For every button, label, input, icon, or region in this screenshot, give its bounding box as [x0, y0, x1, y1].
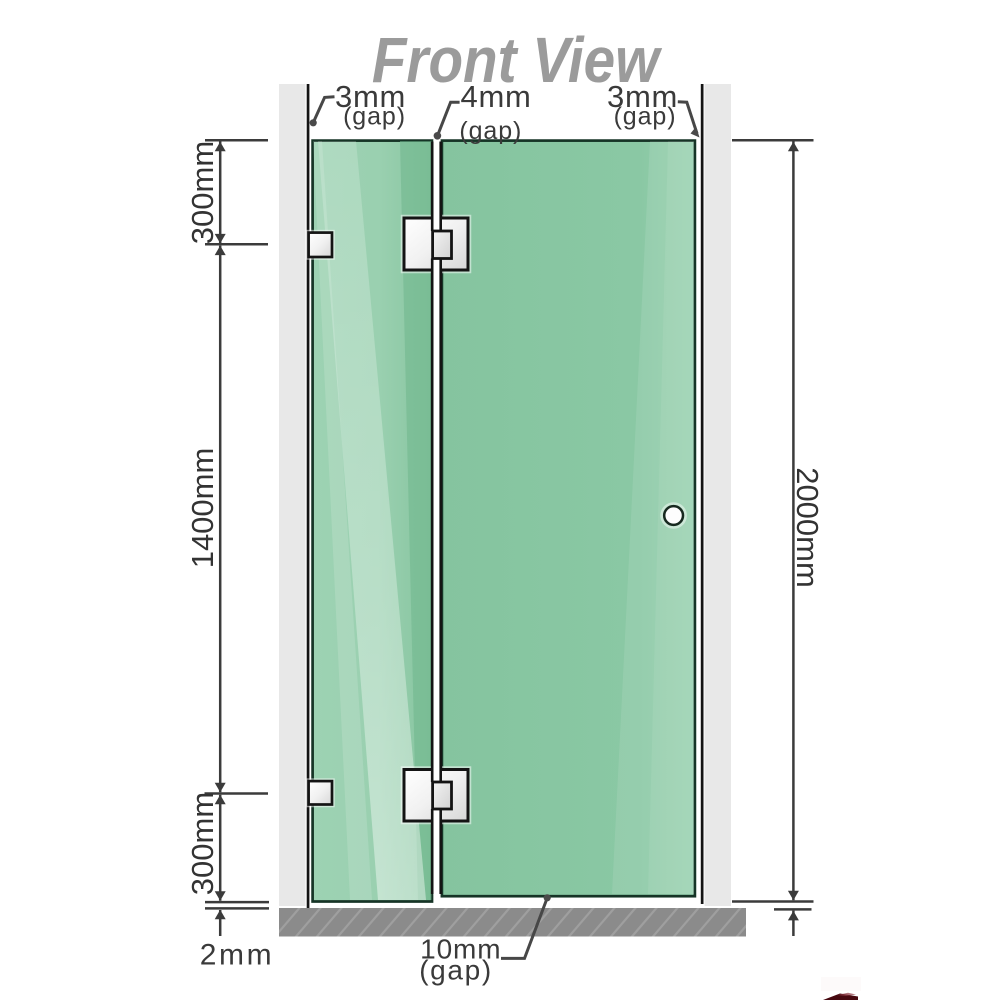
svg-text:4mm: 4mm: [461, 79, 532, 114]
svg-text:2000mm: 2000mm: [790, 467, 825, 588]
svg-text:(gap): (gap): [614, 103, 677, 131]
svg-text:1400mm: 1400mm: [185, 448, 220, 569]
svg-text:(gap): (gap): [459, 117, 522, 145]
svg-text:2mm: 2mm: [200, 939, 274, 972]
svg-text:(gap): (gap): [419, 955, 493, 986]
svg-text:300mm: 300mm: [185, 792, 220, 895]
svg-text:(gap): (gap): [343, 103, 406, 131]
svg-text:300mm: 300mm: [185, 141, 220, 244]
